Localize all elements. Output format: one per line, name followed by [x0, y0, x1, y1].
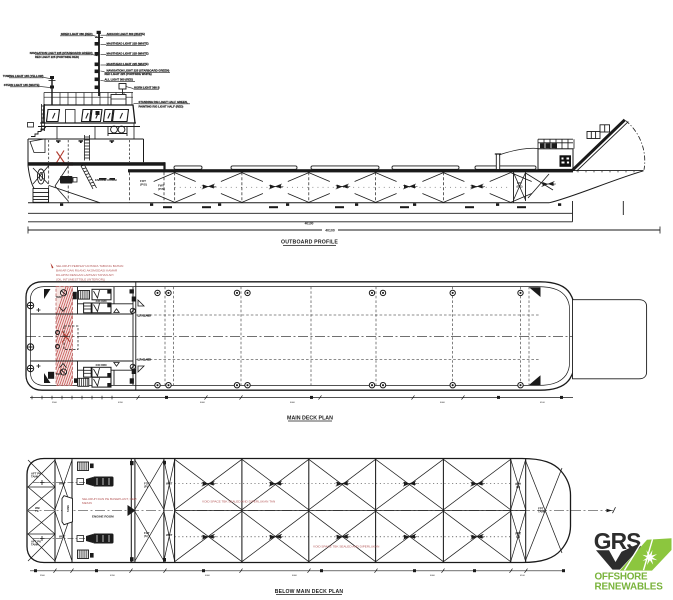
- svg-text:(S): (S): [144, 534, 148, 538]
- svg-text:WBT: WBT: [59, 482, 66, 486]
- svg-text:TRAP: TRAP: [56, 296, 63, 299]
- svg-text:4200: 4200: [118, 402, 124, 404]
- svg-text:MASTHEAD LIGHT 225 (WHITE): MASTHEAD LIGHT 225 (WHITE): [107, 42, 149, 46]
- svg-text:4100: 4100: [540, 402, 546, 404]
- svg-text:SELURUH DAN PE BASEPLANT, CEM: SELURUH DAN PE BASEPLANT, CEM: [82, 497, 137, 501]
- svg-text:XXN RRM: XXN RRM: [95, 364, 106, 367]
- svg-text:TANK: TANK: [31, 543, 39, 547]
- svg-text:STANDING RIG LIGHT HALF GREEN,: STANDING RIG LIGHT HALF GREEN,: [139, 100, 188, 104]
- svg-text:DILAPISI DENGAN LAPISAN TAHAN: DILAPISI DENGAN LAPISAN TAHAN API: [56, 273, 114, 277]
- svg-text:6000: 6000: [200, 402, 206, 404]
- svg-text:FPT: FPT: [517, 181, 522, 185]
- svg-text:40100: 40100: [305, 221, 314, 225]
- svg-text:6000: 6000: [205, 575, 211, 577]
- svg-text:40100: 40100: [325, 229, 335, 233]
- svg-text:RENEWABLES: RENEWABLES: [595, 581, 664, 592]
- svg-text:RED LIGHT 225 (PORTSIDE WHITE): RED LIGHT 225 (PORTSIDE WHITE): [105, 72, 152, 76]
- svg-text:MASTHEAD LIGHT 225 (WHITE): MASTHEAD LIGHT 225 (WHITE): [107, 62, 149, 66]
- svg-text:OUTBOARD PROFILE: OUTBOARD PROFILE: [281, 240, 338, 246]
- svg-text:6000: 6000: [292, 575, 298, 577]
- svg-text:(P): (P): [144, 485, 148, 489]
- svg-text:6000: 6000: [440, 402, 446, 404]
- svg-text:WBT: WBT: [59, 535, 66, 539]
- svg-text:MASTHEAD LIGHT 225 (WHITE): MASTHEAD LIGHT 225 (WHITE): [107, 52, 149, 56]
- svg-text:MAIN DECK PLAN: MAIN DECK PLAN: [287, 415, 333, 421]
- svg-text:6000: 6000: [430, 575, 436, 577]
- svg-text:LR 6L485: LR 6L485: [138, 358, 152, 362]
- svg-text:VOID SPACE TBK SEALED AND DIPE: VOID SPACE TBK SEALED AND DIPERLUKAN: [313, 544, 379, 548]
- svg-text:VOID SPACE TBK SEALED AND DIPE: VOID SPACE TBK SEALED AND DIPERLUKAN TAN: [202, 500, 275, 504]
- svg-text:RED LIGHT 225 (PORTSIDE RED): RED LIGHT 225 (PORTSIDE RED): [35, 55, 79, 59]
- svg-text:TANK: TANK: [538, 510, 546, 514]
- svg-text:(P/S): (P/S): [140, 183, 147, 187]
- svg-text:(P/S): (P/S): [517, 184, 523, 188]
- svg-text:TOWING LIGHT 135 (YELLOW): TOWING LIGHT 135 (YELLOW): [3, 74, 44, 78]
- svg-text:BAKAR DAN RUANG AKOMODASI KAMA: BAKAR DAN RUANG AKOMODASI KAMAR: [56, 269, 118, 273]
- svg-text:SIREN LIGHT 360 (RED): SIREN LIGHT 360 (RED): [61, 32, 93, 36]
- svg-text:TANK: TANK: [66, 505, 70, 512]
- svg-text:STERN LIGHT 135 (WHITE): STERN LIGHT 135 (WHITE): [4, 83, 40, 87]
- svg-text:TK: TK: [35, 509, 39, 513]
- svg-text:4200: 4200: [110, 575, 116, 577]
- svg-text:(S): (S): [516, 535, 520, 539]
- svg-text:XXN RRM: XXN RRM: [95, 300, 106, 303]
- svg-text:ENGINE ROOM: ENGINE ROOM: [92, 515, 114, 519]
- svg-text:HORN LIGHT 360 B: HORN LIGHT 360 B: [134, 85, 160, 89]
- svg-text:TANK: TANK: [31, 475, 39, 479]
- svg-text:3500: 3500: [40, 575, 46, 577]
- svg-text:LR 6L485: LR 6L485: [138, 314, 152, 318]
- svg-text:MESIN: MESIN: [82, 501, 92, 505]
- svg-text:4100: 4100: [520, 575, 526, 577]
- svg-text:(P): (P): [516, 485, 520, 489]
- svg-text:PAINTING RIG LIGHT HALF (RED): PAINTING RIG LIGHT HALF (RED): [139, 105, 184, 109]
- svg-text:ANCHOR LIGHT 360 (WHITE): ANCHOR LIGHT 360 (WHITE): [107, 32, 146, 36]
- svg-text:(OIL INTUMESTTBLE (INTERIOR)): (OIL INTUMESTTBLE (INTERIOR)): [56, 277, 105, 281]
- svg-text:6000: 6000: [290, 402, 296, 404]
- svg-text:SELURUH PEMISAH ANTARA TABUNG: SELURUH PEMISAH ANTARA TABUNG BAHAN: [56, 264, 123, 268]
- svg-text:3500: 3500: [52, 402, 58, 404]
- svg-text:ALL LIGHT 360 (RED): ALL LIGHT 360 (RED): [105, 78, 134, 82]
- svg-text:(P/S): (P/S): [158, 187, 165, 191]
